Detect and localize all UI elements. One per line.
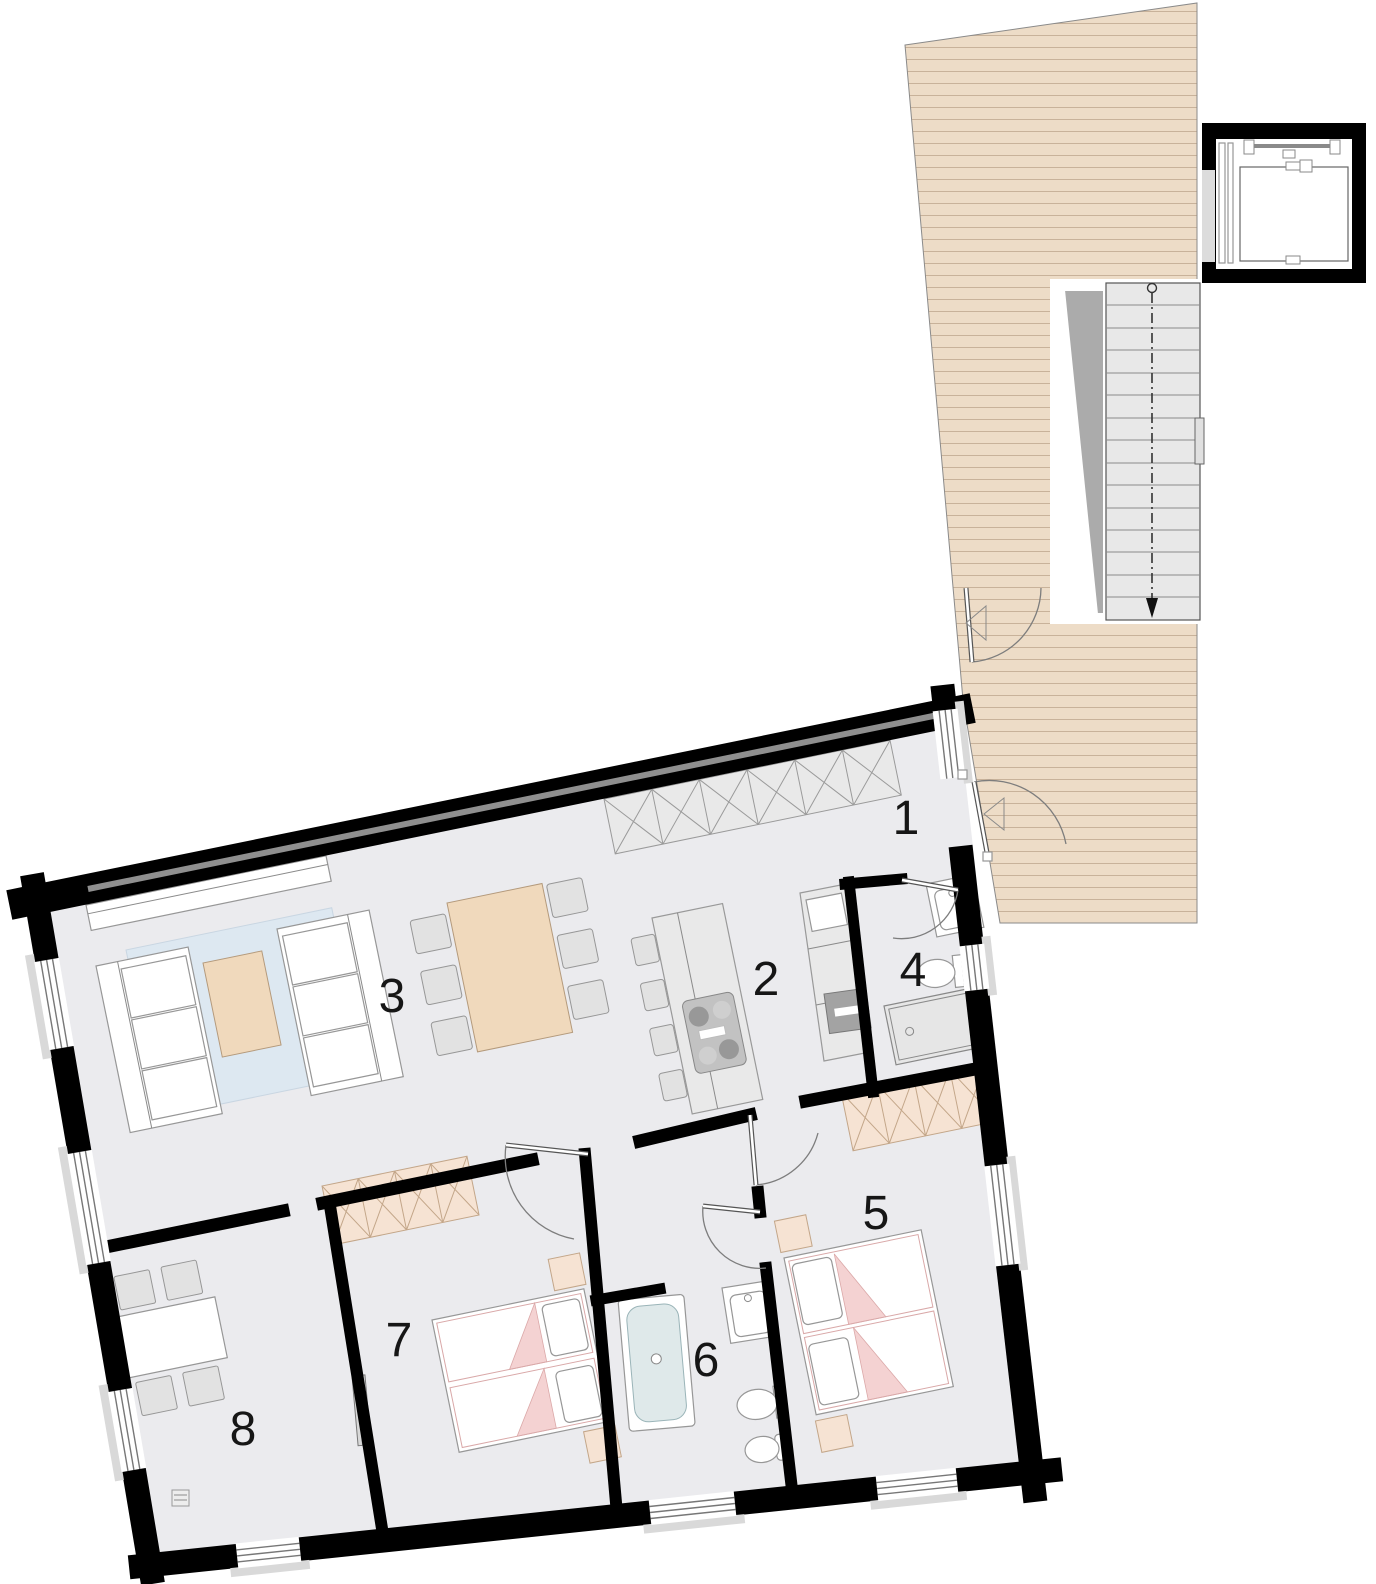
elevator-door-rail-2 [1228, 143, 1233, 263]
bar-stool [640, 979, 669, 1011]
room-number-3: 3 [379, 970, 406, 1023]
window-east-room5 [991, 1156, 1024, 1270]
wall-south-seg [735, 1489, 877, 1504]
wall-south-seg [957, 1471, 1050, 1481]
kitchen-appliance [806, 893, 847, 931]
bar-stool [649, 1024, 678, 1056]
bar-stool [658, 1069, 687, 1101]
wall-south-seg [141, 1556, 237, 1566]
window-south-3 [871, 1474, 967, 1505]
window-west-3 [103, 1385, 140, 1481]
room-number-7: 7 [386, 1314, 413, 1367]
elevator-door-opening [1202, 170, 1215, 262]
room-number-6: 6 [693, 1334, 720, 1387]
dining-chair [431, 1015, 473, 1056]
dining-chair [546, 877, 588, 918]
room-number-2: 2 [753, 953, 780, 1006]
window-south-1 [231, 1543, 310, 1572]
room-number-1: 1 [893, 792, 920, 845]
room-number-4: 4 [900, 944, 927, 997]
floor-plan-canvas: 1 2 3 4 5 6 7 8 [0, 0, 1376, 1584]
room-number-8: 8 [230, 1403, 257, 1456]
nightstand [548, 1253, 586, 1291]
door-jamb [983, 852, 992, 861]
nightstand [815, 1415, 853, 1453]
bar-stool [631, 934, 660, 966]
chair [135, 1375, 177, 1416]
wall-east-seg [944, 697, 946, 712]
room-number-5: 5 [863, 1187, 890, 1240]
dining-chair [420, 965, 462, 1006]
wall-east-seg [962, 858, 972, 945]
page: 1 2 3 4 5 6 7 8 [0, 0, 1376, 1584]
elevator-door-rail [1219, 143, 1225, 263]
elevator-car [1240, 167, 1348, 261]
floor-drain-icon [172, 1490, 189, 1506]
wall-corridor-room5-upper [758, 1192, 760, 1212]
dining-chair [567, 979, 609, 1020]
chair [182, 1366, 224, 1407]
chair [161, 1260, 203, 1301]
door-jamb [958, 770, 967, 779]
drain-icon [651, 1353, 662, 1364]
staircase [1050, 279, 1204, 624]
chair [114, 1270, 156, 1311]
elevator [1202, 123, 1366, 283]
dining-chair [410, 914, 452, 955]
window-south-2 [644, 1498, 745, 1530]
bathtub [618, 1294, 695, 1431]
stair-steps [1106, 283, 1200, 620]
nightstand [774, 1215, 812, 1253]
wall-west-seg [34, 886, 47, 960]
dining-chair [557, 928, 599, 969]
stair-handrail [1195, 418, 1204, 464]
